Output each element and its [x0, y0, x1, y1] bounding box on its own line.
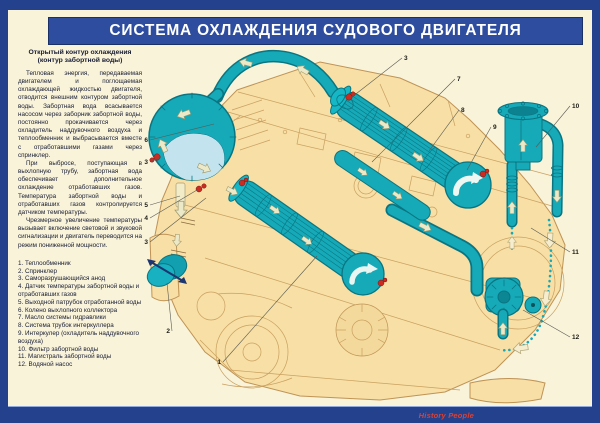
legend-item: 4. Датчик температуры забортной воды и о…	[18, 283, 142, 299]
callout-number: 3	[144, 159, 148, 166]
callout-number: 5	[144, 202, 148, 209]
legend-item: 8. Система трубок интеркуллера	[18, 322, 142, 330]
legend-item: 1. Теплообменник	[18, 260, 142, 268]
callout-number: 10	[572, 103, 580, 110]
legend-item: 7. Масло системы гидравлики	[18, 314, 142, 322]
callout-number: 12	[572, 334, 580, 341]
sidebar-text-column: Открытый контур охлаждения (контур забор…	[18, 49, 142, 369]
legend-item: 11. Магистраль забортной воды	[18, 353, 142, 361]
callout-number: 2	[166, 328, 170, 335]
exhaust-outlet-pipe	[175, 183, 187, 218]
paragraph: Чрезмерное увеличение температуры вызыва…	[18, 217, 142, 250]
callout-number: 4	[144, 215, 148, 222]
callout-number: 3	[144, 239, 148, 246]
paragraph: Тепловая энергия, передаваемая двигателе…	[18, 70, 142, 160]
callout-number: 7	[457, 76, 461, 83]
title-banner: СИСТЕМА ОХЛАЖДЕНИЯ СУДОВОГО ДВИГАТЕЛЯ	[48, 17, 583, 45]
description-paragraphs: Тепловая энергия, передаваемая двигателе…	[18, 70, 142, 250]
legend-item: 12. Водяной насос	[18, 361, 142, 369]
legend-item: 9. Интеркулер (охладитель наддувочного в…	[18, 330, 142, 346]
alternator	[336, 304, 388, 356]
legend-item: 3. Саморазрушающийся анод	[18, 275, 142, 283]
page-title: СИСТЕМА ОХЛАЖДЕНИЯ СУДОВОГО ДВИГАТЕЛЯ	[109, 22, 521, 40]
callout-number: 9	[493, 124, 497, 131]
legend-item: 6. Колено выхлопного коллектора	[18, 307, 142, 315]
footer-bar: History People	[8, 406, 592, 423]
callout-number: 1	[217, 359, 221, 366]
callout-number: 3	[404, 55, 408, 62]
legend-item: 5. Выходной патрубок отработанной воды	[18, 299, 142, 307]
parts-legend: 1. Теплообменник2. Спринклер3. Саморазру…	[18, 260, 142, 369]
callout-number: 6	[144, 137, 148, 144]
section-heading: Открытый контур охлаждения (контур забор…	[18, 49, 142, 66]
paragraph: При выбросе, поступающая в выхлопную тру…	[18, 160, 142, 217]
callout-number: 8	[461, 107, 465, 114]
publisher-logo: History People	[419, 411, 474, 420]
callout-number: 11	[572, 249, 579, 256]
